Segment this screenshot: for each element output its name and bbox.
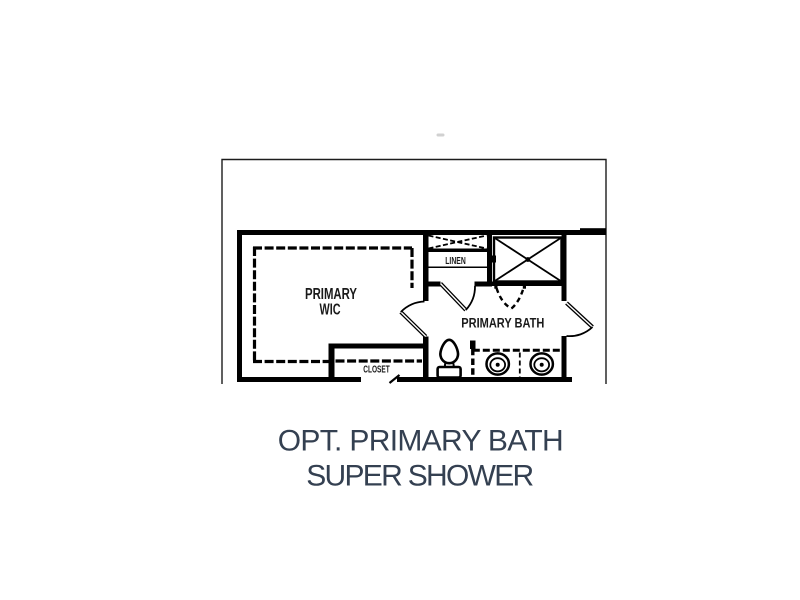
svg-text:WIC: WIC [320, 302, 341, 319]
svg-text:CLOSET: CLOSET [363, 364, 390, 375]
svg-text:LINEN: LINEN [445, 256, 466, 267]
svg-text:PRIMARY: PRIMARY [305, 286, 357, 303]
svg-text:SUPER SHOWER: SUPER SHOWER [306, 460, 534, 493]
svg-text:PRIMARY BATH: PRIMARY BATH [461, 316, 544, 331]
svg-text:OPT. PRIMARY BATH: OPT. PRIMARY BATH [278, 424, 564, 457]
